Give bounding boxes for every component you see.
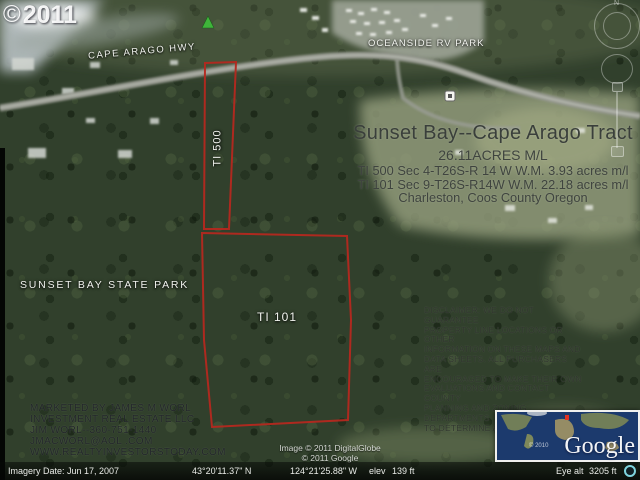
listing-parcel2: TI 101 Sec 9-T26S-R14W W.M. 22.18 acres … [345,178,640,192]
parcel-ti101-outline [202,233,351,427]
label-parcel-ti500: TI 500 [212,129,224,166]
disclaimer-line: DISCLAIMER: WE DO NOT GUARANTEE [424,306,586,326]
disclaimer-line: DATA SHEETS. ALL PURCHASERS ARE [424,355,586,375]
listing-acreage: 26.11ACRES M/L [345,147,640,163]
elev-label: elev [369,466,386,476]
copyright-symbol: © [3,0,21,30]
streaming-indicator-icon [624,465,636,477]
imagery-date: Imagery Date: Jun 17, 2007 [8,466,119,476]
broker-contact-block: MARKETED BY JAMES M WORL INVESTMENT REAL… [30,403,226,458]
marketing-line: JMACWORL@AOL .COM [30,436,226,447]
latitude-readout: 43°20'11.37" N [192,466,251,476]
digitalglobe-credit: Image © 2011 DigitalGlobe [240,443,420,453]
photo-watermark: © 2011 [3,0,77,30]
marketing-line: WWW.REALTYINVESTORSTODAY.COM [30,447,226,458]
disclaimer-line: EVALUATIONS AND CONTACT COUNTY [424,384,586,404]
overview-map[interactable]: © 2010 Google [495,410,640,462]
marketing-line: JIM WORL--360-751-1440 [30,425,226,436]
overview-map-credit: © 2010 [529,443,548,449]
elevation-readout: 139 ft [392,466,415,476]
listing-parcel1: TI 500 Sec 4-T26S-R 14 W W.M. 3.93 acres… [345,164,640,178]
imagery-credits: Image © 2011 DigitalGlobe © 2011 Google [240,443,420,463]
listing-annotation: Sunset Bay--Cape Arago Tract 26.11ACRES … [345,122,640,205]
compass-north-label: N [614,0,619,7]
eye-alt-label: Eye alt [556,466,584,476]
imagery-edge-strip [0,148,5,480]
zoom-in-handle[interactable] [612,82,623,92]
watermark-year: 2011 [23,0,77,30]
highway-shield-icon [445,91,455,101]
listing-location: Charleston, Coos County Oregon [345,191,640,205]
zoom-out-handle[interactable] [611,146,624,157]
houses [12,58,178,158]
marketing-line: INVESTMENT REAL ESTATE LLC [30,414,226,425]
look-joystick[interactable] [601,54,633,84]
zoom-slider-track[interactable] [616,92,618,148]
label-parcel-ti101: TI 101 [257,310,297,324]
listing-title: Sunset Bay--Cape Arago Tract [345,122,640,145]
google-earth-viewport[interactable]: © 2011 CAPE ARAGO HWY OCEANSIDE RV PARK … [0,0,640,480]
eye-altitude-readout: 3205 ft [589,466,617,476]
status-bar: Imagery Date: Jun 17, 2007 43°20'11.37" … [0,462,640,480]
disclaimer-line: PROPERTY LINE LOCATIONS OR OTHER [424,326,586,346]
marketing-line: MARKETED BY JAMES M WORL [30,403,226,414]
label-oceanside-rv-park: OCEANSIDE RV PARK [368,38,484,49]
label-sunset-bay-state-park: SUNSET BAY STATE PARK [20,279,189,291]
overview-location-marker [565,415,569,420]
compass-inner-ring[interactable] [603,12,631,40]
google-logo: Google [564,434,635,458]
longitude-readout: 124°21'25.88" W [290,466,357,476]
